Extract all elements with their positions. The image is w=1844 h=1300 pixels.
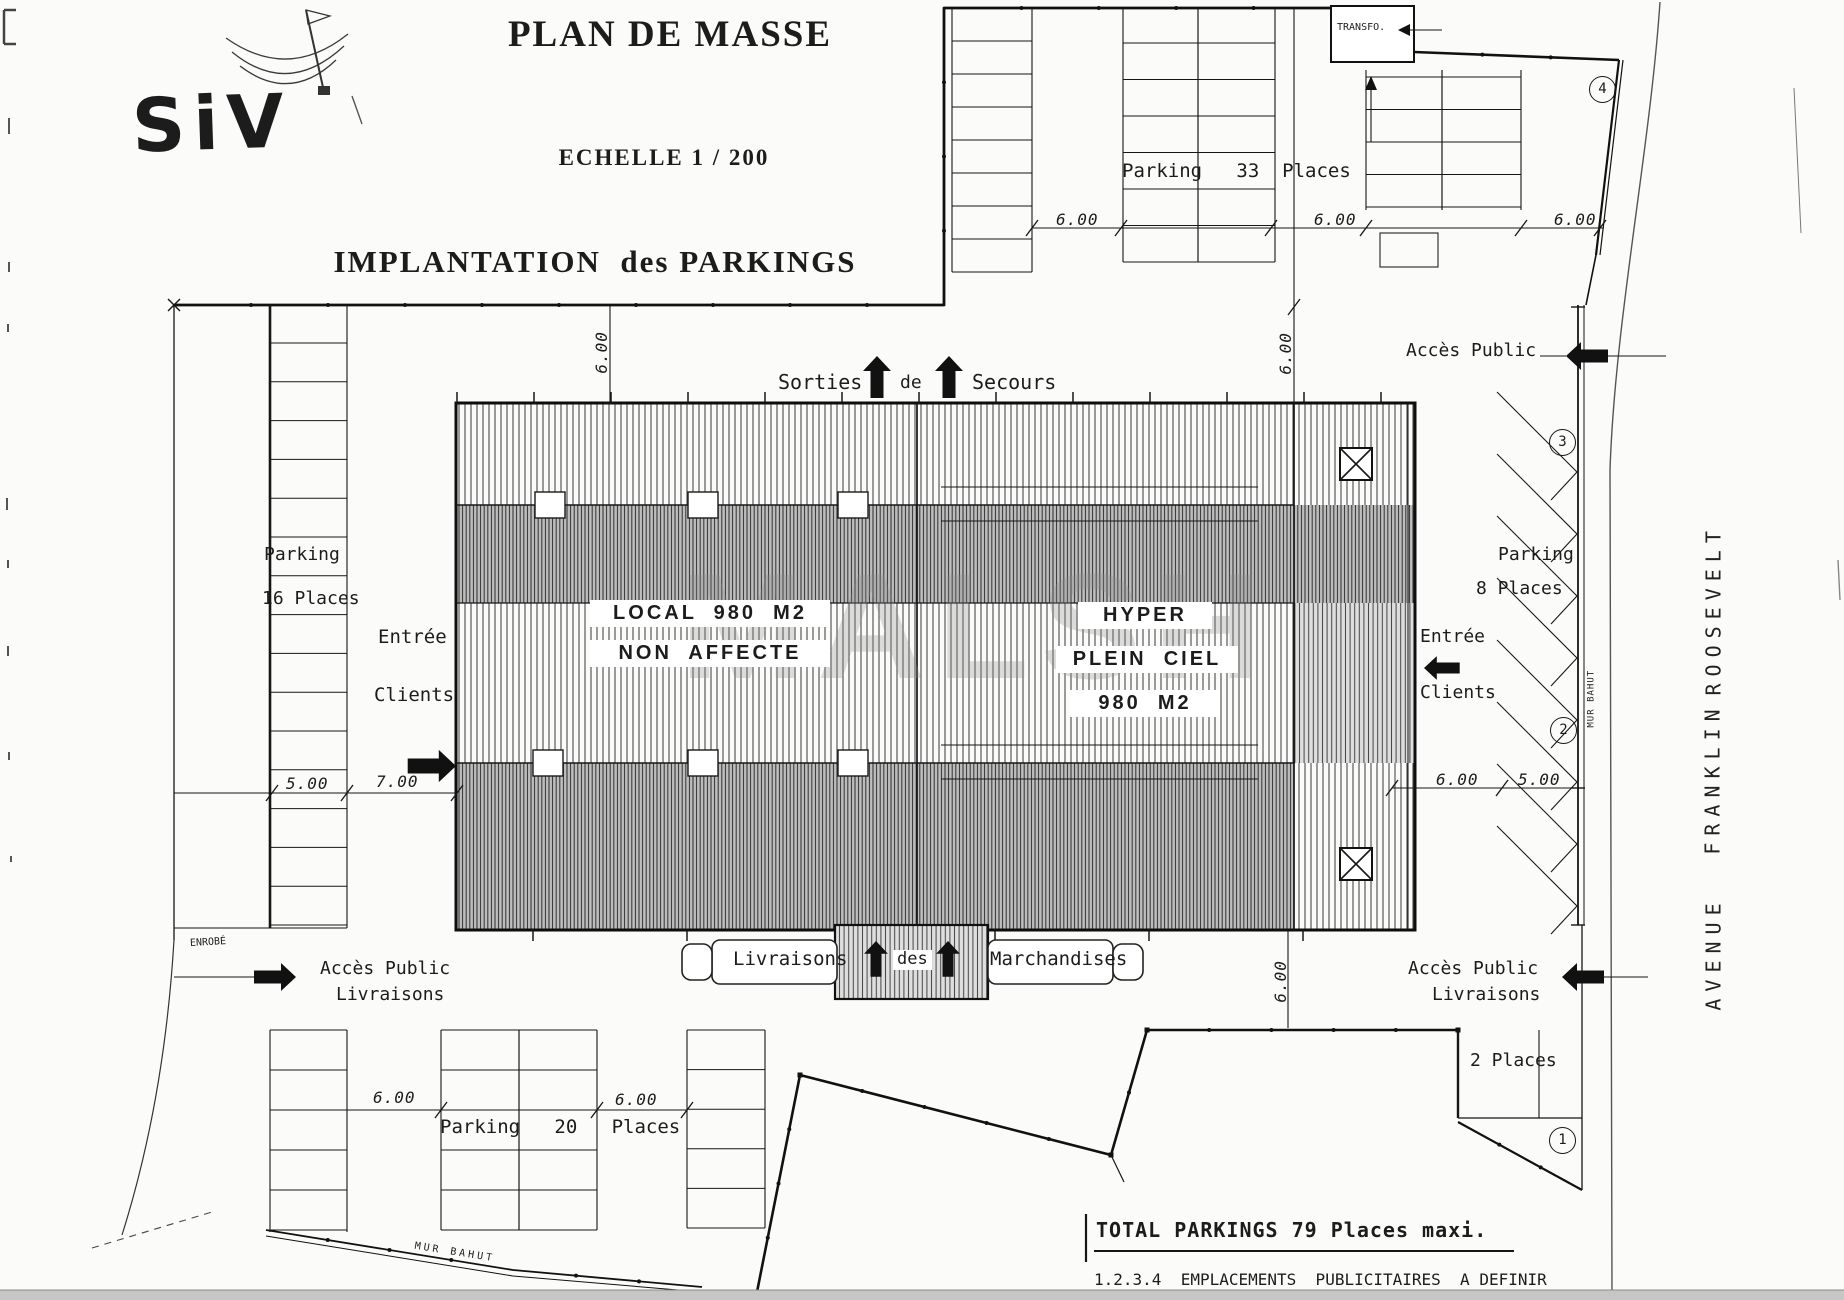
sorties-de-label: de <box>900 374 922 393</box>
sorties-label: Sorties <box>778 372 862 393</box>
parking-33-label: Parking 33 Places <box>1122 162 1351 182</box>
acces-public-top-right: Accès Public <box>1406 342 1536 361</box>
scale-label: ECHELLE 1 / 200 <box>464 146 864 170</box>
dim-left-7: 7.00 <box>376 774 419 791</box>
livraisons-label: Livraisons <box>733 950 847 970</box>
publicity-note-label: 1.2.3.4 EMPLACEMENTS PUBLICITAIRES A DEF… <box>1094 1272 1547 1289</box>
parking-16-label-2: 16 Places <box>262 590 360 609</box>
dim-right-6: 6.00 <box>1436 772 1479 789</box>
pub-marker-4: 4 <box>1589 76 1616 103</box>
pub-marker-1: 1 <box>1549 1127 1576 1154</box>
street-franklin: FRANKLIN <box>1703 694 1724 864</box>
hyper-label-line3: 980 M2 <box>1070 690 1220 717</box>
entree-right: Entrée <box>1420 628 1485 647</box>
mur-bahut-right-label: MUR BAHUT <box>1587 654 1596 744</box>
dim-right-5: 5.00 <box>1518 772 1561 789</box>
siv-logo: SiV <box>131 83 294 166</box>
entree-left: Entrée <box>378 628 447 648</box>
parking-2-label: 2 Places <box>1470 1052 1557 1071</box>
secours-label: Secours <box>972 372 1056 393</box>
transfo-label: TRANSFO. <box>1337 23 1385 34</box>
acces-public-bottom-right-2: Livraisons <box>1432 986 1540 1005</box>
parking-8-label-1: Parking <box>1498 546 1574 565</box>
des-label: des <box>893 950 932 970</box>
dim-aisle-right-top: 6.00 <box>1278 332 1295 375</box>
dim-left-5: 5.00 <box>286 776 329 793</box>
pub-marker-2: 2 <box>1550 717 1577 744</box>
hyper-label-line2: PLEIN CIEL <box>1056 646 1238 673</box>
parking-20-label: Parking 20 Places <box>440 1118 680 1138</box>
dim-top-3: 6.00 <box>1554 212 1597 229</box>
clients-right: Clients <box>1420 684 1496 703</box>
diagonal-parking-hatch <box>1497 392 1577 934</box>
clients-left: Clients <box>374 686 454 706</box>
local-label-line1: LOCAL 980 M2 <box>590 600 830 627</box>
parking-16-label-1: Parking <box>264 546 340 565</box>
subtitle: IMPLANTATION des PARKINGS <box>270 246 920 279</box>
page-title: PLAN DE MASSE <box>470 16 870 55</box>
total-parkings-label: TOTAL PARKINGS 79 Places maxi. <box>1096 1220 1487 1241</box>
parking-8-label-2: 8 Places <box>1476 580 1563 599</box>
dim-top-2: 6.00 <box>1314 212 1357 229</box>
local-label-line2: NON AFFECTE <box>590 640 830 667</box>
enrobe-label: ENROBÉ <box>190 937 227 949</box>
dim-aisle-left: 6.00 <box>594 331 611 374</box>
dim-top-1: 6.00 <box>1056 212 1099 229</box>
site-plan-page: PLAN DE MASSE ECHELLE 1 / 200 IMPLANTATI… <box>0 0 1844 1300</box>
acces-public-left-1: Accès Public <box>320 960 450 979</box>
marchandises-label: Marchandises <box>990 950 1127 970</box>
street-roosevelt: ROOSEVELT <box>1704 526 1725 696</box>
dim-bottom-1: 6.00 <box>373 1090 416 1107</box>
acces-public-left-2: Livraisons <box>336 986 444 1005</box>
dim-aisle-right-bottom: 6.00 <box>1273 960 1290 1003</box>
street-avenue: AVENUE <box>1704 869 1725 1039</box>
acces-public-bottom-right-1: Accès Public <box>1408 960 1538 979</box>
pub-marker-3: 3 <box>1549 429 1576 456</box>
dim-bottom-2: 6.00 <box>615 1092 658 1109</box>
hyper-label-line1: HYPER <box>1078 602 1212 629</box>
